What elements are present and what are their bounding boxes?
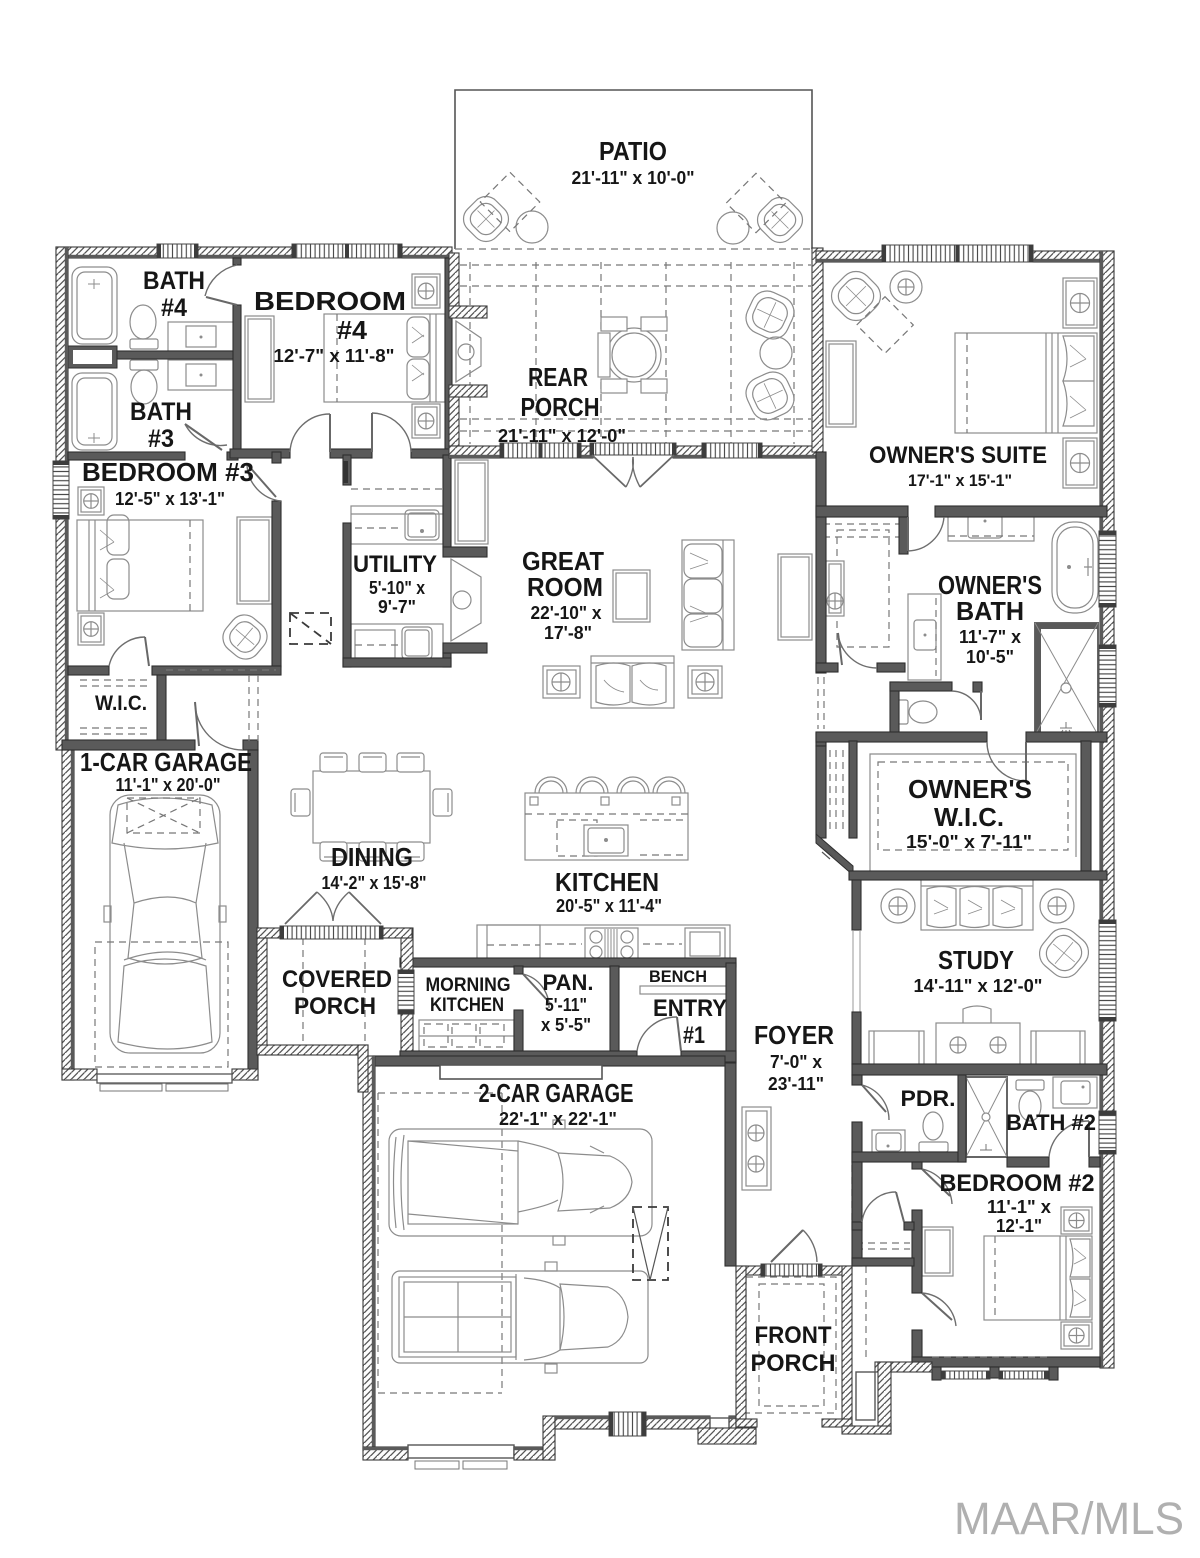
svg-text:STUDY: STUDY (938, 945, 1014, 975)
svg-text:ENTRY: ENTRY (653, 995, 727, 1022)
svg-text:BENCH: BENCH (649, 967, 707, 986)
svg-text:PDR.: PDR. (901, 1086, 956, 1111)
svg-text:FOYER: FOYER (754, 1020, 834, 1050)
svg-text:#3: #3 (148, 425, 174, 453)
svg-text:KITCHEN: KITCHEN (555, 867, 659, 897)
svg-text:#4: #4 (337, 315, 368, 345)
svg-text:1-CAR GARAGE: 1-CAR GARAGE (80, 747, 252, 777)
svg-text:7'-0" x: 7'-0" x (770, 1052, 822, 1072)
svg-text:PAN.: PAN. (543, 970, 594, 995)
svg-text:BATH: BATH (143, 267, 205, 295)
svg-text:BATH #2: BATH #2 (1006, 1110, 1096, 1135)
svg-text:17'-8": 17'-8" (544, 623, 592, 643)
svg-text:OWNER'S: OWNER'S (908, 774, 1032, 804)
svg-text:BEDROOM #2: BEDROOM #2 (940, 1170, 1095, 1197)
svg-text:REAR: REAR (528, 362, 588, 392)
svg-text:15'-0" x 7'-11": 15'-0" x 7'-11" (906, 832, 1032, 852)
svg-text:W.I.C.: W.I.C. (934, 802, 1004, 832)
svg-text:9'-7": 9'-7" (378, 597, 416, 617)
svg-text:22'-10" x: 22'-10" x (531, 603, 602, 623)
svg-text:PORCH: PORCH (294, 993, 376, 1020)
svg-text:11'-7" x: 11'-7" x (959, 627, 1021, 647)
svg-text:MAAR/MLS: MAAR/MLS (954, 1493, 1184, 1544)
svg-text:ROOM: ROOM (527, 572, 603, 602)
svg-text:21'-11" x 12'-0": 21'-11" x 12'-0" (498, 426, 626, 446)
svg-text:#1: #1 (683, 1022, 705, 1049)
svg-text:KITCHEN: KITCHEN (430, 995, 504, 1016)
svg-text:PATIO: PATIO (599, 136, 667, 166)
svg-text:PORCH: PORCH (521, 392, 600, 422)
svg-text:12'-7" x 11'-8": 12'-7" x 11'-8" (274, 346, 395, 366)
svg-text:11'-1" x: 11'-1" x (987, 1197, 1051, 1217)
svg-text:MORNING: MORNING (426, 975, 511, 996)
svg-text:12'-1": 12'-1" (996, 1216, 1042, 1236)
svg-text:23'-11": 23'-11" (768, 1074, 824, 1094)
svg-text:21'-11" x 10'-0": 21'-11" x 10'-0" (572, 168, 695, 188)
svg-text:DINING: DINING (331, 842, 413, 872)
svg-text:W.I.C.: W.I.C. (95, 692, 147, 715)
svg-text:FRONT: FRONT (755, 1322, 832, 1349)
svg-text:14'-11" x 12'-0": 14'-11" x 12'-0" (914, 976, 1043, 996)
svg-text:UTILITY: UTILITY (353, 551, 437, 578)
svg-text:17'-1" x 15'-1": 17'-1" x 15'-1" (908, 471, 1012, 490)
svg-text:BATH: BATH (956, 596, 1024, 626)
svg-text:BATH: BATH (130, 398, 192, 426)
svg-text:BEDROOM #3: BEDROOM #3 (82, 457, 254, 487)
svg-text:PORCH: PORCH (751, 1350, 836, 1377)
svg-text:5'-10" x: 5'-10" x (369, 578, 425, 598)
svg-text:2-CAR GARAGE: 2-CAR GARAGE (479, 1078, 634, 1108)
svg-text:BEDROOM: BEDROOM (254, 286, 406, 316)
svg-text:12'-5" x 13'-1": 12'-5" x 13'-1" (115, 489, 225, 509)
svg-text:COVERED: COVERED (282, 966, 392, 993)
svg-text:#4: #4 (161, 294, 187, 322)
svg-text:OWNER'S SUITE: OWNER'S SUITE (869, 442, 1047, 469)
svg-text:10'-5": 10'-5" (966, 647, 1014, 667)
svg-text:22'-1" x 22'-1": 22'-1" x 22'-1" (499, 1109, 617, 1129)
svg-text:20'-5" x 11'-4": 20'-5" x 11'-4" (556, 896, 662, 916)
svg-text:x 5'-5": x 5'-5" (541, 1015, 591, 1035)
svg-text:11'-1" x 20'-0": 11'-1" x 20'-0" (116, 775, 221, 795)
svg-text:14'-2" x 15'-8": 14'-2" x 15'-8" (322, 873, 427, 893)
svg-text:5'-11": 5'-11" (545, 995, 587, 1015)
